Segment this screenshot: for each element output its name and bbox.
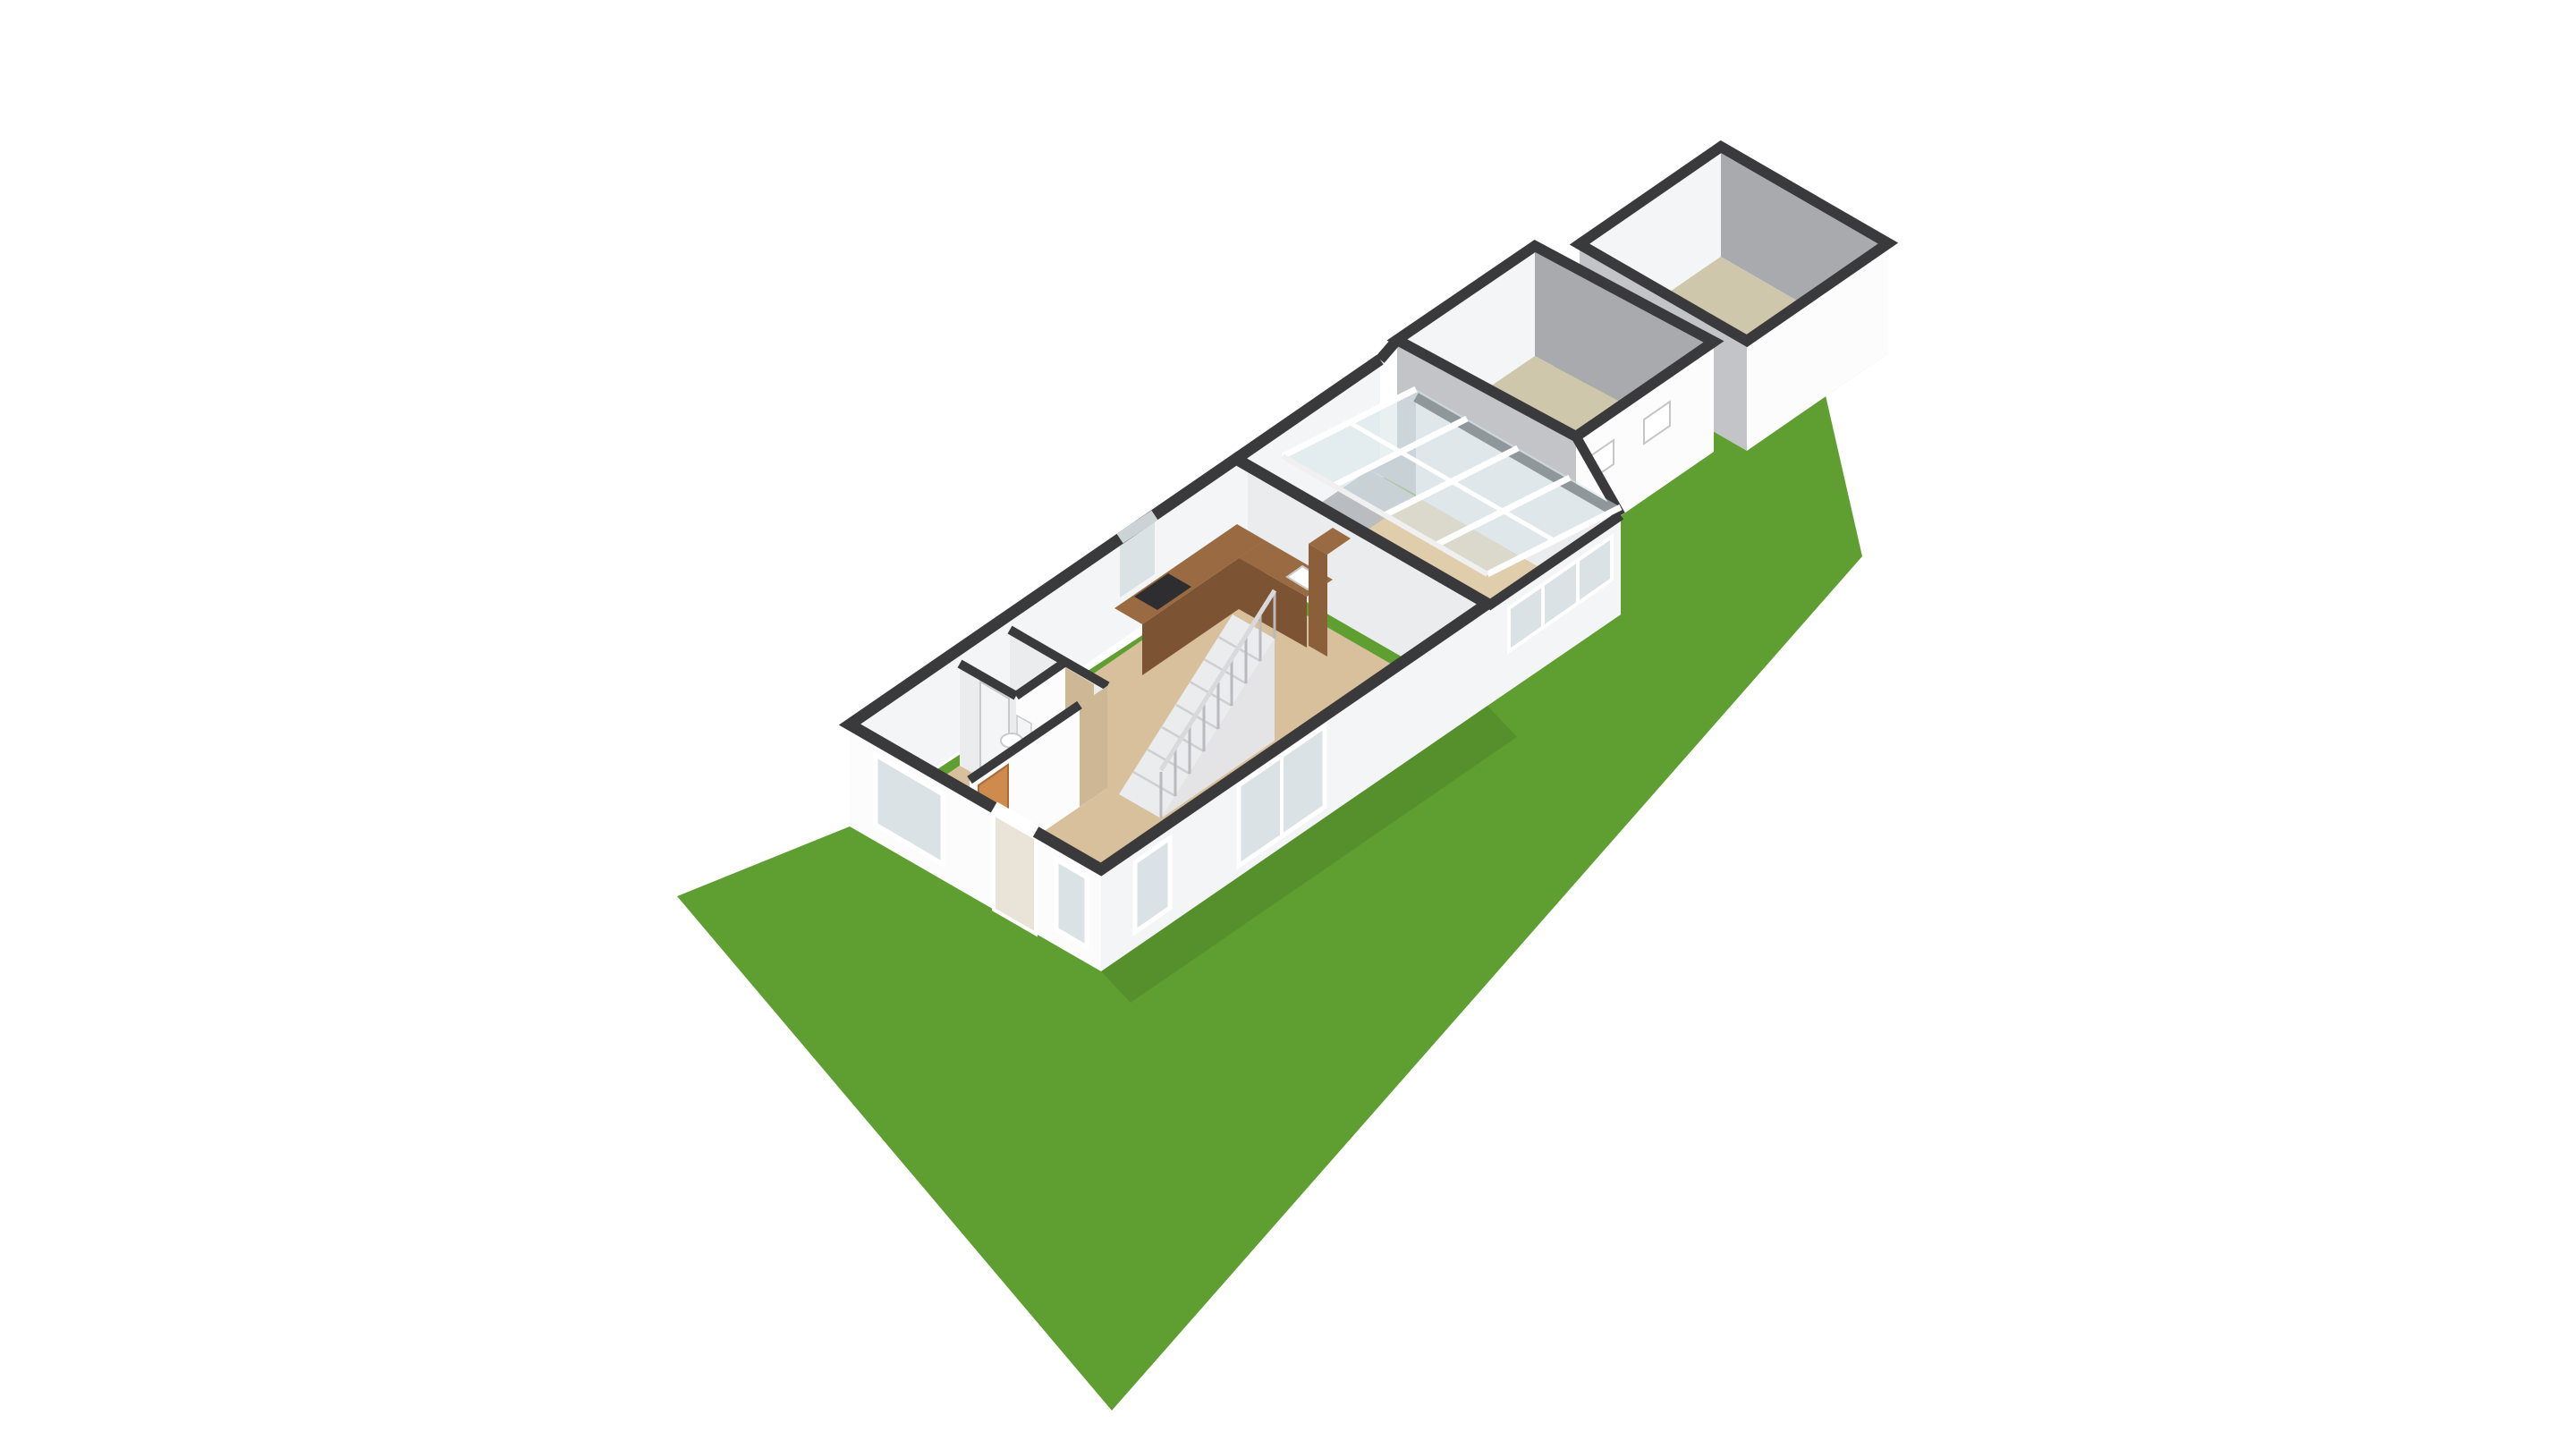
hall-living-wall-opening <box>1080 686 1107 807</box>
floorplan-stage <box>0 0 2576 1449</box>
floorplan-svg <box>0 0 2576 1449</box>
kitchen-tall-cabinet-front <box>1309 544 1327 657</box>
front-window-2 <box>1056 860 1087 947</box>
boundary-wall-cap-2 <box>1380 340 1397 360</box>
